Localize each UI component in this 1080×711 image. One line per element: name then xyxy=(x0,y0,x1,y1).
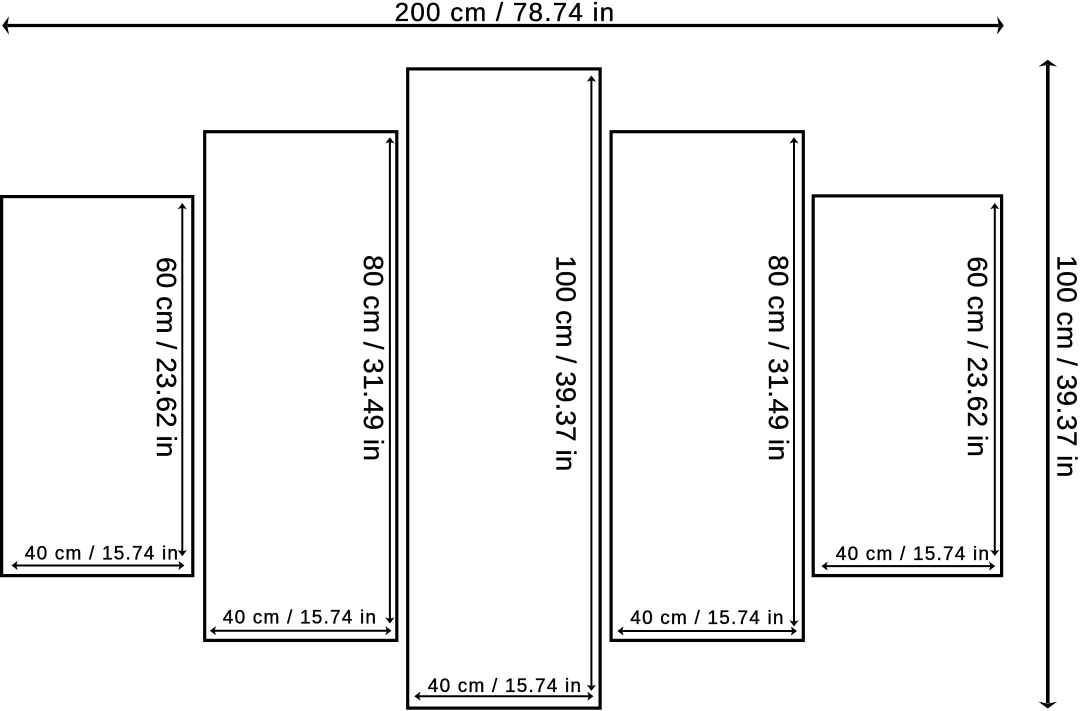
svg-text:60 cm / 23.62 in: 60 cm / 23.62 in xyxy=(962,256,993,457)
svg-text:100 cm / 39.37 in: 100 cm / 39.37 in xyxy=(1051,255,1080,478)
svg-text:100 cm / 39.37 in: 100 cm / 39.37 in xyxy=(551,255,582,471)
svg-text:40 cm / 15.74 in: 40 cm / 15.74 in xyxy=(630,608,784,629)
svg-text:80 cm / 31.49 in: 80 cm / 31.49 in xyxy=(763,255,794,461)
svg-text:80 cm / 31.49 in: 80 cm / 31.49 in xyxy=(358,255,389,461)
svg-text:40 cm / 15.74 in: 40 cm / 15.74 in xyxy=(223,608,377,629)
svg-text:40 cm / 15.74 in: 40 cm / 15.74 in xyxy=(25,543,179,564)
svg-text:40 cm / 15.74 in: 40 cm / 15.74 in xyxy=(836,544,990,565)
svg-text:60 cm / 23.62 in: 60 cm / 23.62 in xyxy=(151,257,182,458)
svg-text:40 cm / 15.74 in: 40 cm / 15.74 in xyxy=(428,676,582,697)
svg-text:200 cm / 78.74 in: 200 cm / 78.74 in xyxy=(395,0,616,27)
